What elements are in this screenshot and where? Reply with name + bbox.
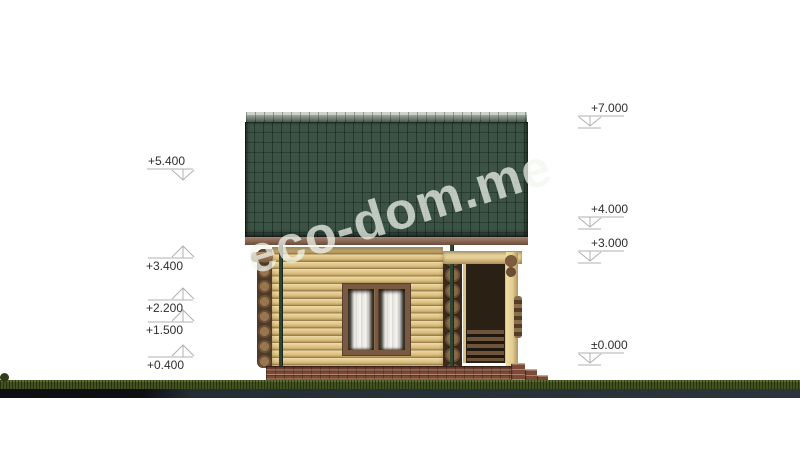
elevation-drawing: eco-dom.me +5.400+3.400+2.200+1.500+0.40… bbox=[0, 0, 800, 450]
porch-railing-log-ends bbox=[514, 296, 522, 338]
window-pane-left bbox=[348, 289, 374, 350]
roof-ridge-cap bbox=[246, 115, 527, 122]
log-end-knot bbox=[506, 267, 516, 277]
log-end-knot bbox=[505, 255, 517, 267]
brick-foundation bbox=[266, 366, 519, 381]
grass-strip bbox=[0, 380, 800, 389]
porch-inner-steps bbox=[467, 330, 504, 361]
window-pane-right bbox=[379, 289, 405, 350]
brick-step bbox=[511, 363, 525, 381]
window bbox=[343, 284, 410, 355]
bush bbox=[0, 373, 9, 382]
ground-layer bbox=[0, 389, 800, 398]
